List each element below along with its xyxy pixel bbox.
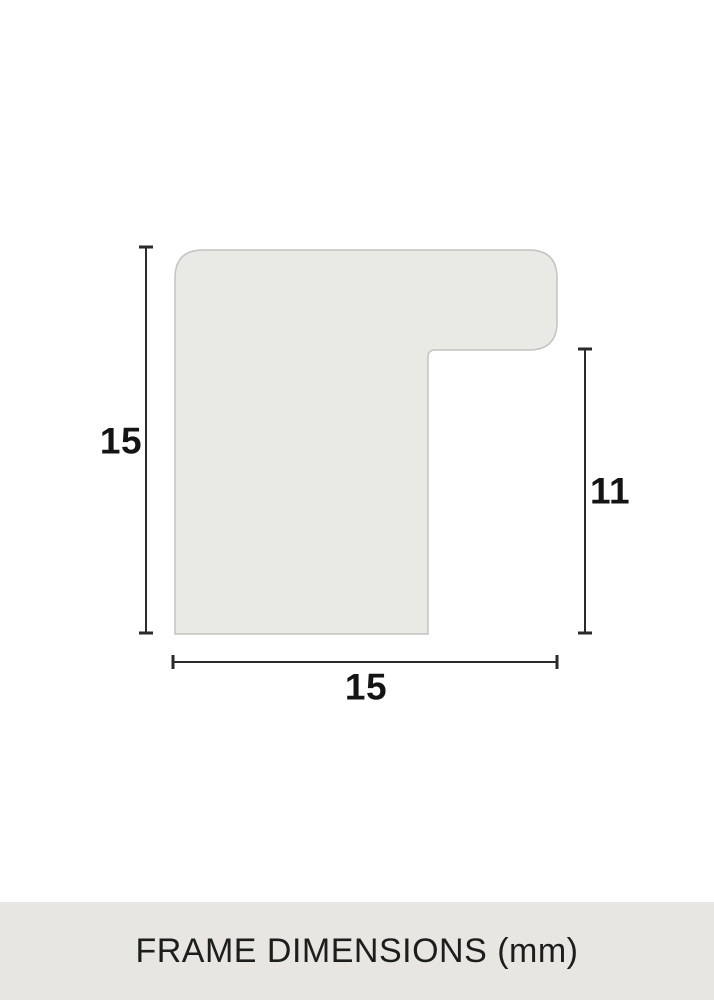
rabbet-dimension-label: 11 bbox=[590, 473, 630, 510]
footer-caption-title: FRAME DIMENSIONS (mm) bbox=[135, 932, 578, 971]
width-dimension-label: 15 bbox=[345, 669, 387, 706]
frame-dimensions-page: 15 11 15 FRAME DIMENSIONS (mm) bbox=[0, 0, 714, 1000]
footer-caption-bar: FRAME DIMENSIONS (mm) bbox=[0, 902, 714, 1000]
height-dimension-label: 15 bbox=[100, 423, 142, 460]
frame-profile-shape bbox=[175, 250, 557, 634]
